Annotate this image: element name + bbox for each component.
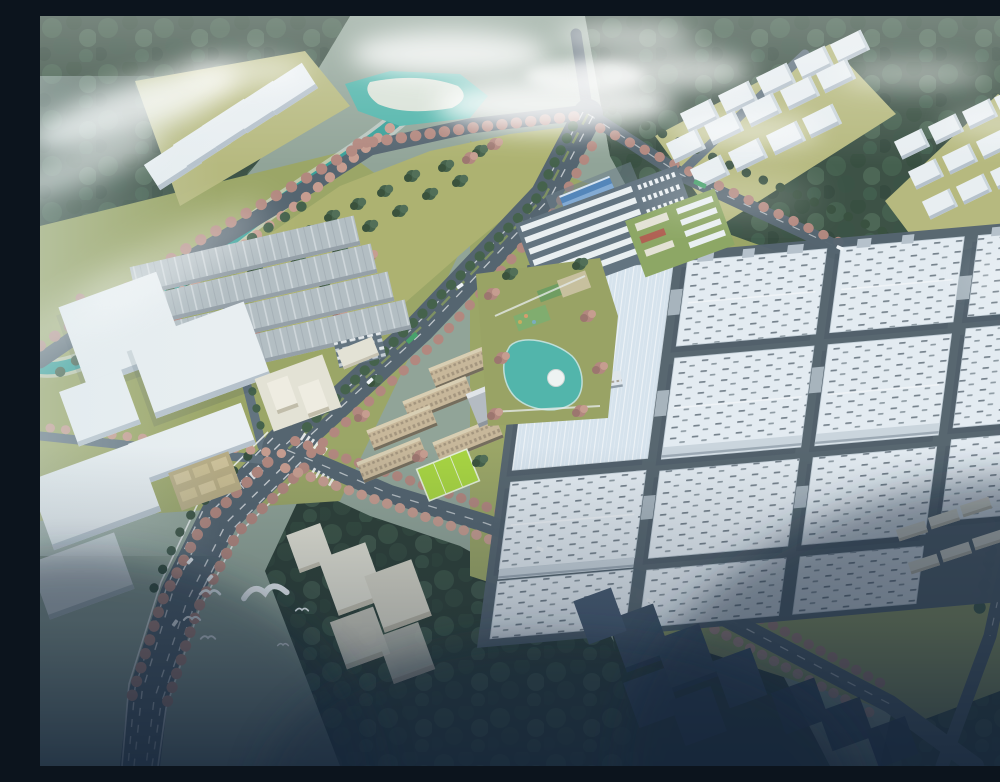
rendering-canvas	[40, 16, 1000, 766]
vignette	[40, 446, 1000, 766]
aerial-rendering	[40, 16, 1000, 766]
